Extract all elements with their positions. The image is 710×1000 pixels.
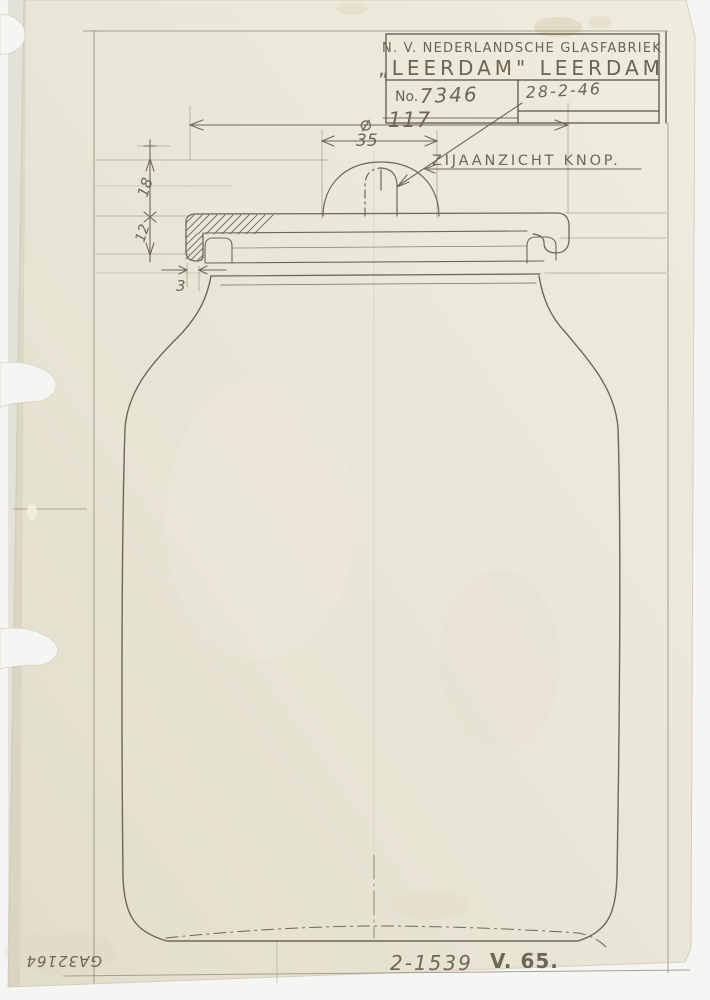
drawing-date: 28-2-46 — [525, 79, 602, 102]
paper-scuff — [27, 504, 37, 520]
scanned-technical-drawing: N. V. NEDERLANDSCHE GLASFABRIEK „LEERDAM… — [0, 0, 710, 1000]
number-label: No. — [395, 89, 418, 105]
drawing-canvas: N. V. NEDERLANDSCHE GLASFABRIEK „LEERDAM… — [0, 0, 710, 1000]
model-code: 2-1539 — [390, 951, 473, 975]
drawing-number: 7346 — [419, 82, 479, 108]
company-brand: „LEERDAM" LEERDAM — [378, 56, 664, 80]
dim-clearance-value: 3 — [176, 277, 186, 295]
dim-knob-width-value: 35 — [356, 131, 378, 151]
dim-diameter-value: 117 — [388, 108, 431, 132]
knob-view-label: ZIJAANZICHT KNOP. — [432, 153, 621, 169]
variant-code: V. 65. — [490, 949, 559, 973]
company-name: N. V. NEDERLANDSCHE GLASFABRIEK — [382, 41, 662, 56]
archive-number: GA32164 — [25, 952, 102, 970]
